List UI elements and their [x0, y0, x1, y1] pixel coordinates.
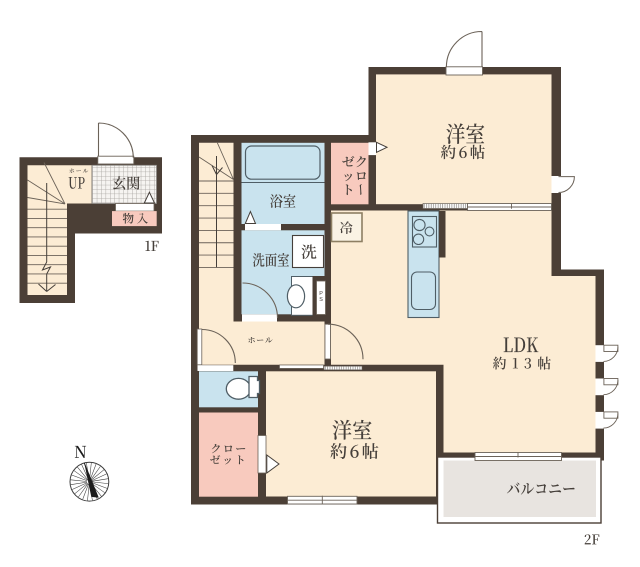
- svg-text:S: S: [319, 297, 323, 303]
